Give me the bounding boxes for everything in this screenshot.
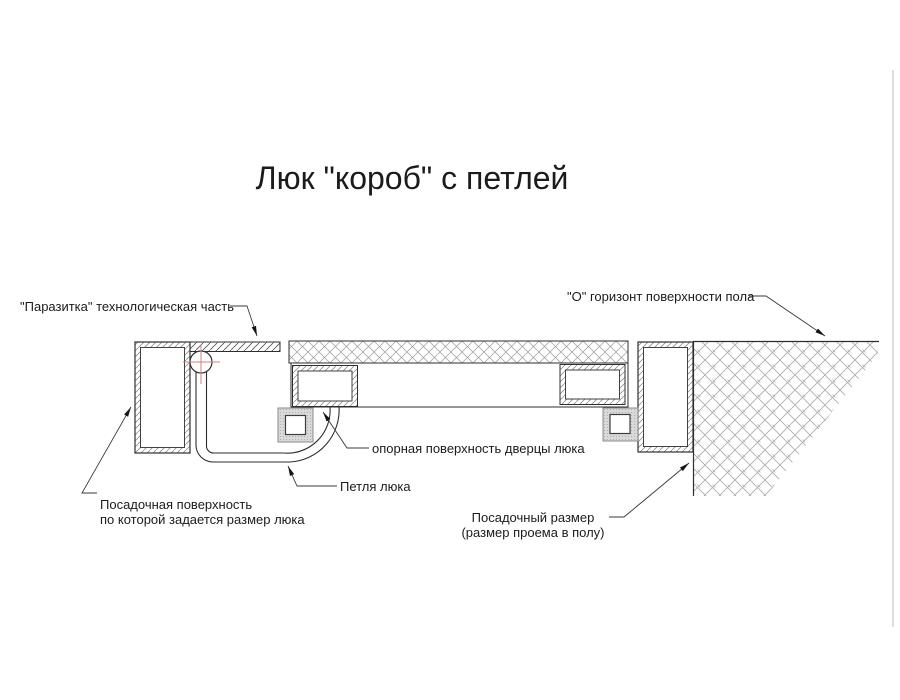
left-frame-inner [141, 348, 185, 448]
label-seating-size-line1: Посадочный размер [472, 510, 595, 525]
left-frame-profile [135, 342, 190, 453]
hinge-square-right-inner [610, 415, 630, 434]
hinge-square-left-inner [286, 416, 306, 435]
leader-seating-surface [82, 407, 131, 493]
label-seating-size-line2: (размер проема в полу) [461, 525, 604, 540]
label-seating-surface-line2: по которой задается размер люка [100, 512, 305, 527]
right-frame-profile [638, 342, 693, 452]
leader-seating-size [609, 463, 689, 517]
door-insert-left-inner [298, 371, 352, 401]
hatch-section-drawing: "Паразитка" технологическая часть "О" го… [0, 0, 900, 700]
hinge-square-left [278, 408, 313, 442]
door-insert-right-inner [566, 370, 620, 399]
label-hinge: Петля люка [340, 479, 411, 494]
technical-drawing-page: Люк "короб" с петлей [0, 0, 900, 700]
floor-slab [693, 341, 879, 496]
door-insert-left [293, 366, 358, 407]
leader-parasitka [230, 306, 257, 336]
label-floor-horizon: "О" горизонт поверхности пола [567, 289, 755, 304]
label-seating-surface-line1: Посадочная поверхность [100, 497, 252, 512]
label-parasitka: "Паразитка" технологическая часть [20, 299, 234, 314]
hinge-square-right [603, 408, 638, 441]
hatch-door [289, 341, 628, 407]
leader-hinge [288, 466, 337, 486]
label-door-support-surface: опорная поверхность дверцы люка [372, 441, 585, 456]
floor-slab-hatch [694, 342, 878, 496]
right-frame-inner [644, 348, 688, 447]
door-tile-layer [289, 341, 628, 363]
leader-floor-horizon [749, 296, 825, 336]
parasitka-bar [190, 342, 280, 352]
door-insert-right [560, 365, 625, 405]
